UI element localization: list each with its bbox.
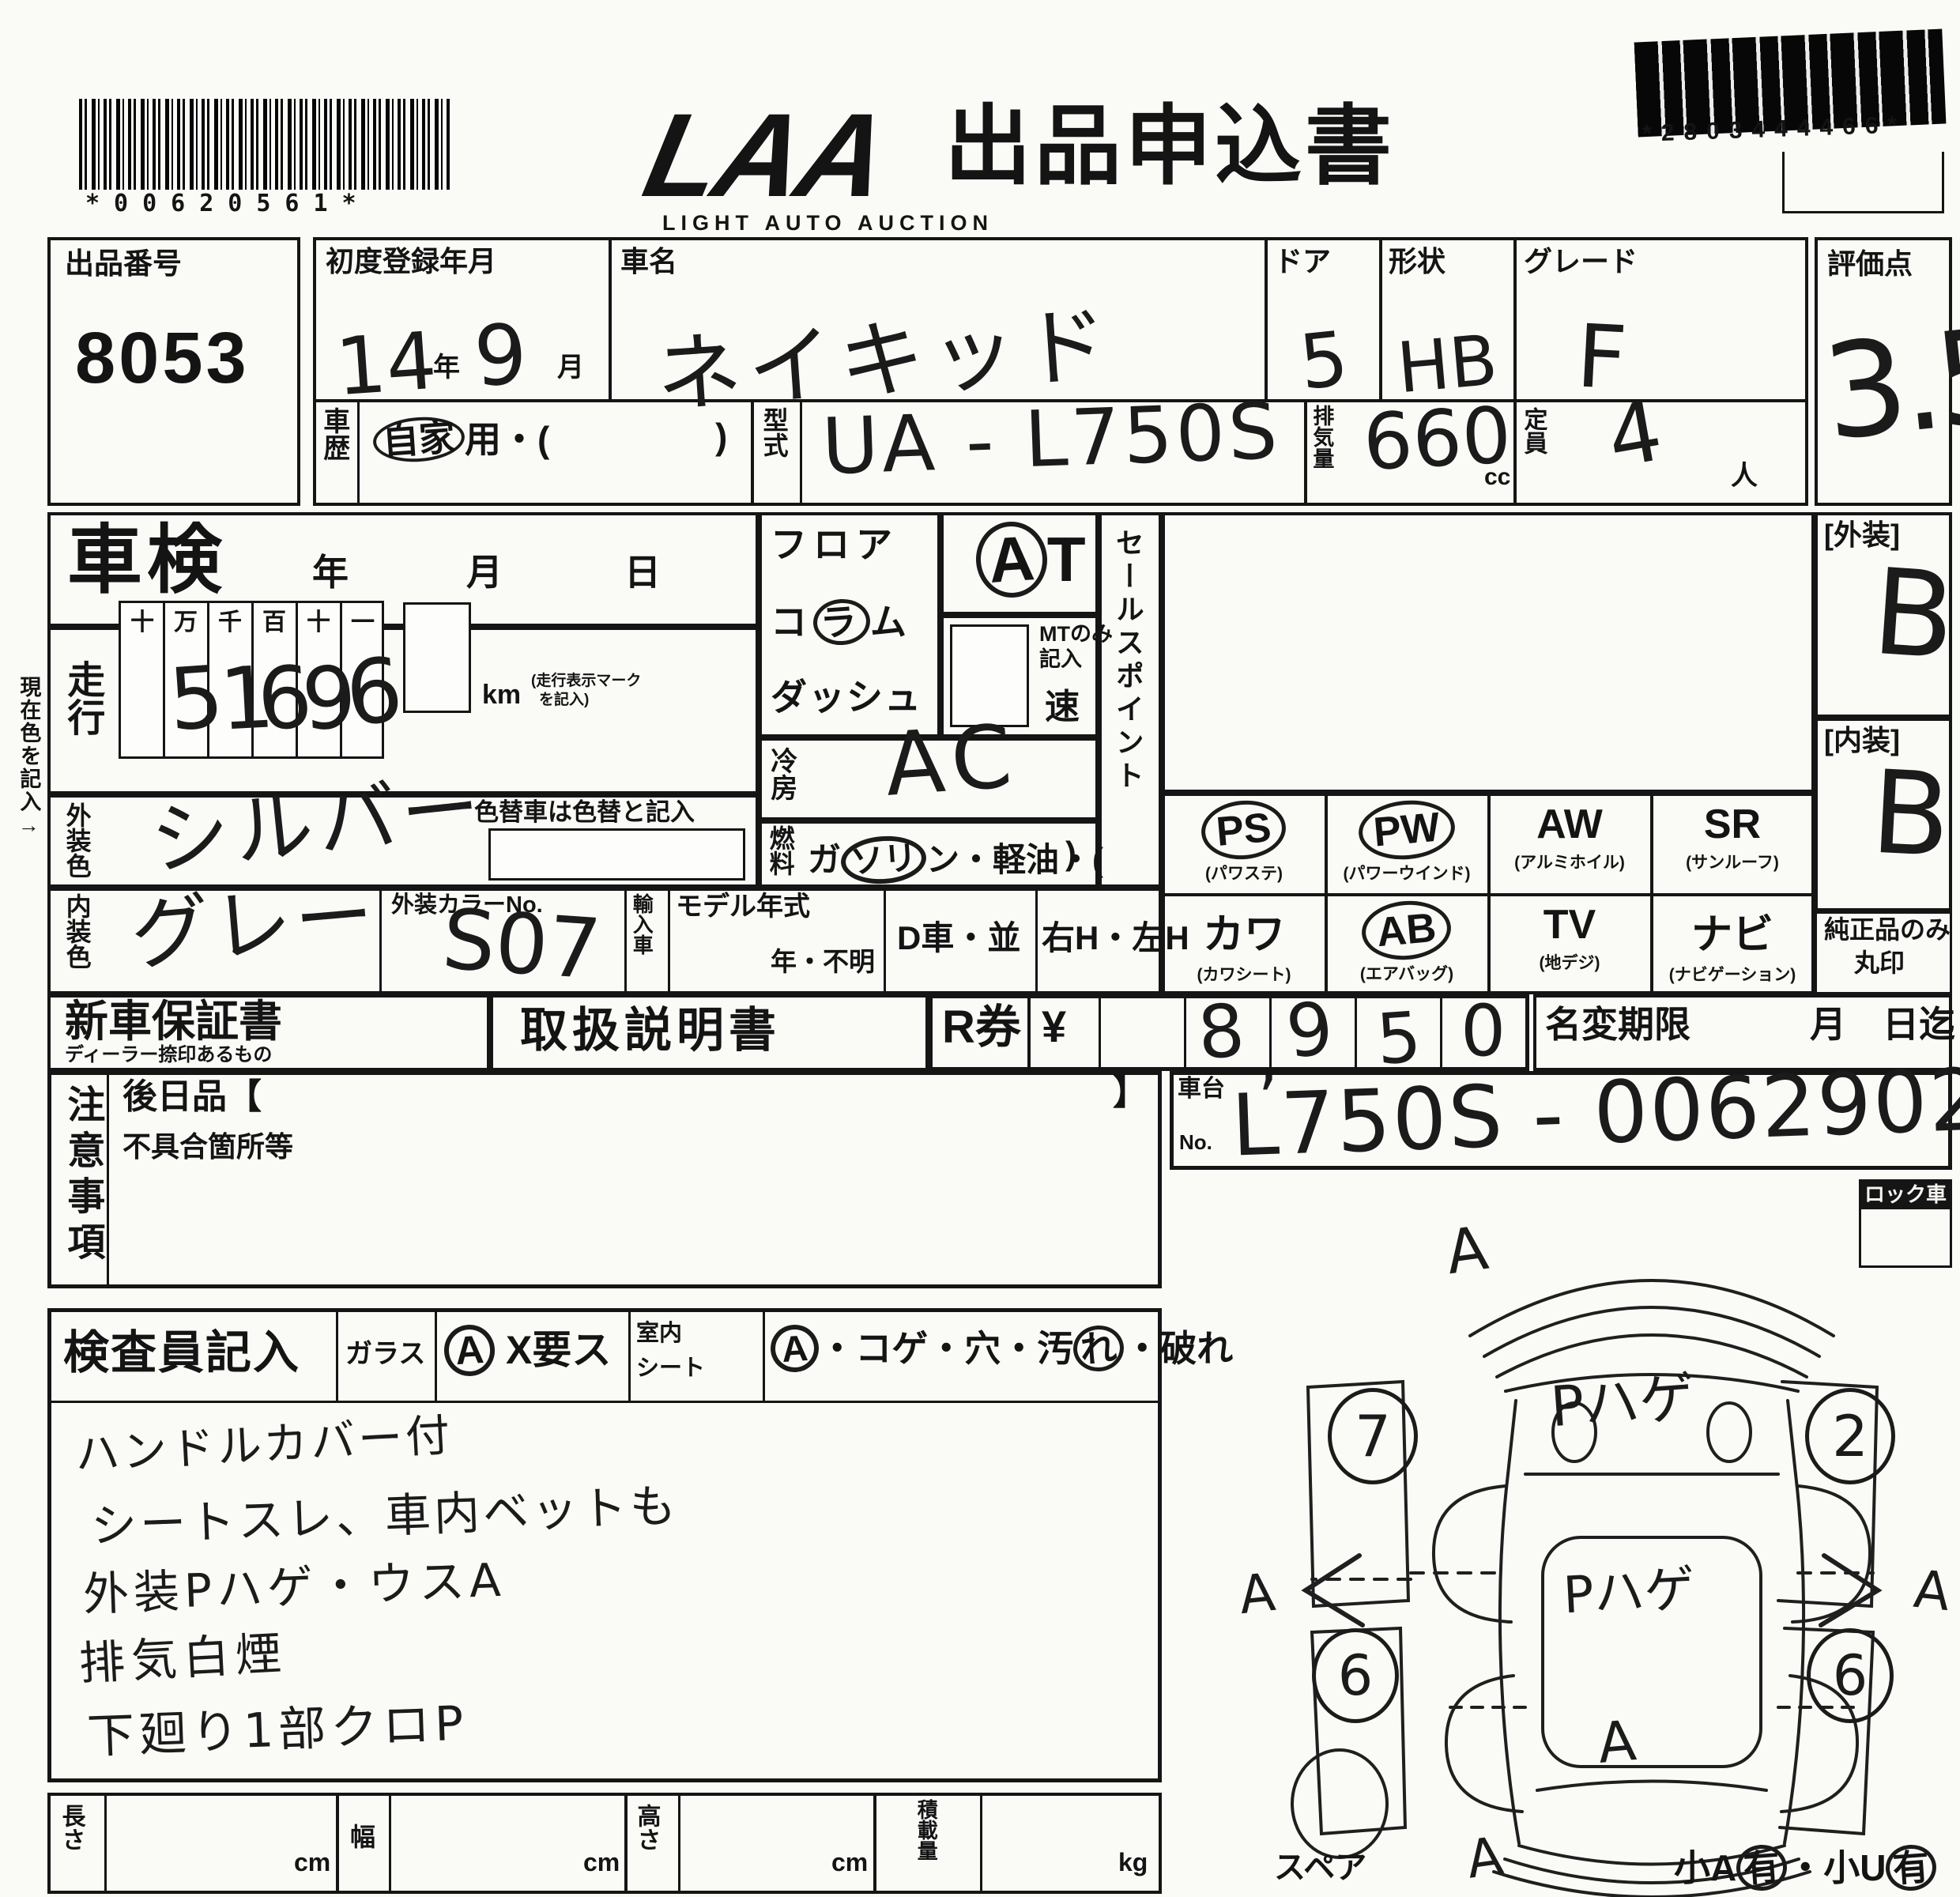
corner-note: 小A有・小U有 bbox=[1674, 1845, 1936, 1891]
corner-note-1: 小A bbox=[1674, 1847, 1736, 1888]
seat-circled: れ bbox=[1072, 1324, 1125, 1374]
width-unit: cm bbox=[583, 1850, 620, 1876]
sales-point-label: セールスポイント bbox=[1113, 528, 1143, 794]
amount-digit-0: 8 bbox=[1196, 993, 1247, 1072]
column-circled: ラ bbox=[812, 598, 872, 647]
amount-digit-1: 9 bbox=[1283, 990, 1336, 1071]
later-goods-close: 】 bbox=[1113, 1075, 1148, 1111]
genuine-note-2: 丸印 bbox=[1854, 950, 1905, 977]
name-change-label: 名変期限 bbox=[1545, 1005, 1690, 1043]
color-no-value: S07 bbox=[439, 896, 603, 994]
door-label: ドア bbox=[1274, 247, 1331, 277]
score-label: 評価点 bbox=[1827, 249, 1913, 279]
odo-header-0: 十 bbox=[130, 610, 154, 635]
genuine-note-1: 純正品のみ bbox=[1824, 917, 1951, 944]
capacity-unit: 人 bbox=[1731, 462, 1758, 491]
diagram-center-mark: Pハゲ bbox=[1562, 1563, 1696, 1624]
corner-note-3: ・小U bbox=[1787, 1847, 1886, 1888]
fuel-post: ン・軽油・( bbox=[926, 841, 1103, 878]
equipment-ab: AB (エアバッグ) bbox=[1331, 901, 1483, 985]
diagram-wheel-rl: 6 bbox=[1312, 1628, 1399, 1723]
equipment-navi: ナビ (ナビゲーション) bbox=[1657, 901, 1808, 986]
chassis-no-value: L750S - 0062902 bbox=[1230, 1055, 1960, 1171]
import-label: 輸入車 bbox=[631, 893, 652, 955]
caution-label: 注意事項 bbox=[62, 1084, 101, 1268]
diagram-right-a: A bbox=[1912, 1562, 1953, 1620]
shaken-month-char: 月 bbox=[466, 553, 503, 591]
length-unit: cm bbox=[294, 1850, 330, 1876]
door-value: 5 bbox=[1296, 320, 1352, 404]
history-label: 車歴 bbox=[319, 407, 348, 461]
load-unit: kg bbox=[1118, 1850, 1148, 1876]
diagram-roof-mark: Pハゲ bbox=[1549, 1369, 1697, 1437]
grade-label: グレード bbox=[1524, 247, 1638, 277]
history-rest: 用・( bbox=[465, 419, 549, 460]
later-goods-label: 後日品【 bbox=[122, 1079, 262, 1115]
equipment-tv: TV (地デジ) bbox=[1494, 901, 1645, 974]
odo-header-4: 十 bbox=[307, 610, 330, 635]
dash-label: ダッシュ bbox=[771, 678, 922, 716]
current-color-note: 現在色を記入→ bbox=[17, 676, 40, 839]
glass-label: ガラス bbox=[345, 1341, 425, 1369]
first-reg-year: 14 bbox=[333, 319, 439, 409]
history-circled-value: 自家 bbox=[371, 414, 466, 465]
color-change-note: 色替車は色替と記入 bbox=[474, 800, 695, 826]
interior-color-label: 内装色 bbox=[63, 893, 90, 969]
shape-label: 形状 bbox=[1389, 247, 1445, 277]
amount-digit-2: 5 bbox=[1374, 1001, 1423, 1077]
model-code-label: 型式 bbox=[760, 407, 787, 458]
warranty-sub: ディーラー捺印あるもの bbox=[65, 1045, 272, 1065]
diagram-rear-a: A bbox=[1463, 1828, 1506, 1888]
defect-label: 不具合箇所等 bbox=[122, 1132, 293, 1162]
equipment-kawa: カワ (カワシート) bbox=[1168, 901, 1320, 986]
cooling-label: 冷房 bbox=[767, 747, 795, 801]
seat-post: ・破れ bbox=[1124, 1328, 1233, 1369]
mileage-label: 走行 bbox=[62, 660, 101, 736]
shaken-day-char: 日 bbox=[624, 553, 661, 591]
mt-note-2: 記入 bbox=[1039, 648, 1082, 670]
km-note-2: を記入) bbox=[539, 692, 589, 708]
equipment-ps: PS (パワステ) bbox=[1168, 801, 1320, 884]
chassis-label-1: 車台 bbox=[1178, 1077, 1225, 1102]
column-post: ム bbox=[870, 602, 913, 643]
amount-digit-3: 0 bbox=[1461, 994, 1506, 1069]
seat-pre: ・コゲ・穴・汚 bbox=[819, 1328, 1073, 1369]
diagram-front-a: A bbox=[1442, 1216, 1492, 1284]
at-rest: T bbox=[1047, 524, 1086, 594]
at-circled: A bbox=[974, 519, 1050, 600]
model-code-value: UA - L750S bbox=[820, 391, 1282, 488]
seat-a-circled: A bbox=[769, 1323, 820, 1374]
odo-header-1: 万 bbox=[174, 610, 198, 635]
interior-grade-value: B bbox=[1868, 753, 1953, 877]
chassis-label-2: No. bbox=[1179, 1132, 1212, 1153]
floor-label: フロア bbox=[771, 526, 899, 564]
width-label: 幅 bbox=[350, 1824, 375, 1851]
rticket-label: R券 bbox=[942, 1004, 1021, 1052]
first-reg-month: 9 bbox=[472, 311, 529, 401]
first-reg-label: 初度登録年月 bbox=[326, 247, 496, 277]
score-value: 3.5 bbox=[1818, 307, 1960, 462]
auction-sheet: *00620561* LAA LIGHT AUTO AUCTION 出品申込書 … bbox=[0, 0, 1960, 1897]
inspector-label: 検査員記入 bbox=[63, 1329, 300, 1378]
height-unit: cm bbox=[831, 1850, 868, 1876]
mileage-mark-box bbox=[403, 602, 471, 713]
warranty-label: 新車保証書 bbox=[65, 999, 282, 1045]
model-year-label: モデル年式 bbox=[676, 893, 810, 922]
shaken-year-char: 年 bbox=[312, 553, 349, 591]
diagram-left-a: A bbox=[1237, 1565, 1278, 1624]
fuel-pre: ガ bbox=[808, 841, 841, 878]
dimensions-box bbox=[47, 1793, 1162, 1894]
name-change-month: 月 bbox=[1810, 1005, 1846, 1043]
equipment-aw: AW (アルミホイル) bbox=[1494, 801, 1645, 873]
capacity-label: 定員 bbox=[1521, 407, 1546, 454]
glass-note: X要ス bbox=[506, 1328, 611, 1372]
corner-note-4-circled: 有 bbox=[1885, 1843, 1939, 1893]
diagram-trunk-a: A bbox=[1596, 1712, 1638, 1773]
odo-header-2: 千 bbox=[218, 610, 242, 635]
manual-label: 取扱説明書 bbox=[520, 1005, 781, 1055]
barcode-left bbox=[79, 99, 450, 190]
barcode-left-digits: *00620561* bbox=[85, 191, 371, 217]
fuel-close: ) bbox=[1065, 836, 1076, 871]
spare-label: スペア bbox=[1274, 1851, 1366, 1884]
first-reg-month-unit: 月 bbox=[557, 354, 584, 383]
first-reg-year-unit: 年 bbox=[433, 354, 460, 383]
displacement-unit: cc bbox=[1484, 465, 1510, 490]
inspector-note-4: 下廻り1部クロP bbox=[86, 1699, 469, 1763]
km-note-1: (走行表示マーク bbox=[531, 673, 641, 689]
speed-char: 速 bbox=[1045, 689, 1080, 726]
height-label: 高さ bbox=[634, 1804, 659, 1851]
load-label: 積載量 bbox=[915, 1799, 937, 1861]
d-car-note: D車・並 bbox=[897, 921, 1020, 956]
inspector-note-3: 排気白煙 bbox=[78, 1629, 289, 1688]
stamp-box bbox=[1782, 152, 1944, 213]
car-diagram bbox=[1233, 1201, 1952, 1897]
equipment-sr: SR (サンルーフ) bbox=[1657, 801, 1808, 873]
fuel-circled: ソリ bbox=[839, 833, 928, 886]
color-change-box bbox=[488, 828, 745, 881]
entry-number-label: 出品番号 bbox=[65, 249, 182, 280]
interior-color-value: グレー bbox=[127, 873, 380, 978]
room-label-2: シート bbox=[636, 1356, 705, 1380]
laa-logo-subtitle: LIGHT AUTO AUCTION bbox=[662, 212, 993, 234]
odo-header-3: 百 bbox=[262, 610, 286, 635]
column-label: コラム bbox=[771, 599, 913, 645]
sales-point-area bbox=[1162, 512, 1815, 793]
yen-sign: ¥ bbox=[1042, 1004, 1066, 1050]
laa-logo: LAA bbox=[635, 93, 895, 218]
glass-a-circled: A bbox=[443, 1323, 496, 1378]
shaken-label: 車検 bbox=[67, 522, 227, 601]
equipment-pw: PW (パワーウインド) bbox=[1331, 801, 1483, 884]
room-label-1: 室内 bbox=[636, 1322, 682, 1345]
km-unit: km bbox=[482, 681, 521, 710]
odo-header-5: 一 bbox=[351, 610, 375, 635]
displacement-label: 排気量 bbox=[1310, 405, 1332, 469]
length-label: 長さ bbox=[58, 1804, 84, 1851]
diagram-wheel-fl: 7 bbox=[1328, 1388, 1418, 1484]
odo-digit-5: 6 bbox=[342, 644, 406, 741]
fuel-label: 燃料 bbox=[767, 825, 793, 876]
exterior-grade-value: B bbox=[1869, 551, 1959, 681]
car-name-label: 車名 bbox=[620, 247, 677, 277]
form-title: 出品申込書 bbox=[944, 101, 1395, 193]
diagram-wheel-fr: 2 bbox=[1805, 1388, 1895, 1484]
column-pre: コ bbox=[771, 602, 813, 643]
history-close: ) bbox=[715, 417, 727, 455]
corner-note-2-circled: 有 bbox=[1735, 1843, 1788, 1893]
entry-number-value: 8053 bbox=[75, 320, 250, 397]
exterior-color-label: 外装色 bbox=[63, 802, 90, 878]
cooling-value: AC bbox=[882, 711, 1023, 811]
name-change-due: 日迄 bbox=[1883, 1005, 1955, 1043]
model-year-value: 年・不明 bbox=[771, 948, 875, 976]
diagram-wheel-rr: 6 bbox=[1807, 1628, 1894, 1723]
